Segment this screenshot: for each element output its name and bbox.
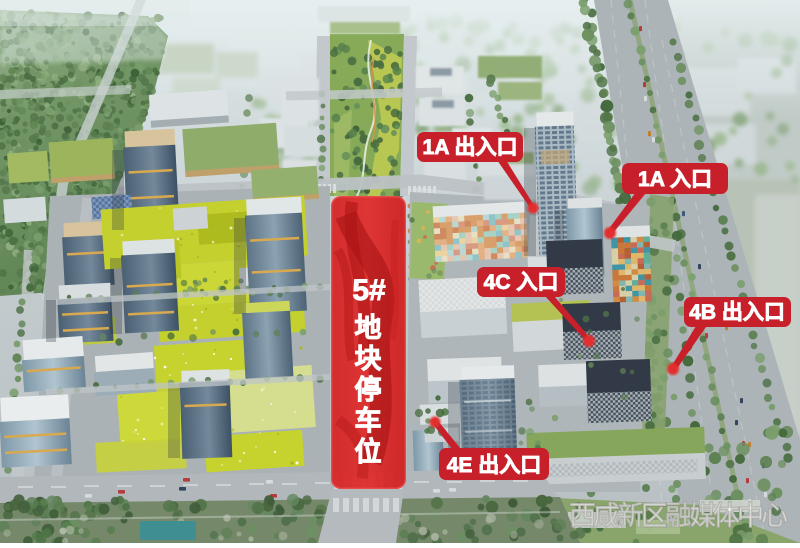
svg-text:4E 出入口: 4E 出入口 [447, 454, 542, 477]
svg-text:5#: 5# [352, 274, 386, 307]
svg-text:块: 块 [355, 344, 383, 374]
svg-text:车: 车 [355, 405, 382, 436]
svg-text:4B 出入口: 4B 出入口 [689, 301, 785, 324]
svg-text:位: 位 [355, 436, 382, 467]
svg-text:停: 停 [355, 374, 382, 405]
svg-text:1A 出入口: 1A 出入口 [423, 136, 518, 159]
svg-text:1A 入口: 1A 入口 [638, 168, 712, 191]
svg-text:地: 地 [355, 313, 382, 343]
svg-text:西咸新区融媒体中心: 西咸新区融媒体中心 [569, 500, 788, 531]
svg-text:4C 入口: 4C 入口 [484, 271, 559, 294]
